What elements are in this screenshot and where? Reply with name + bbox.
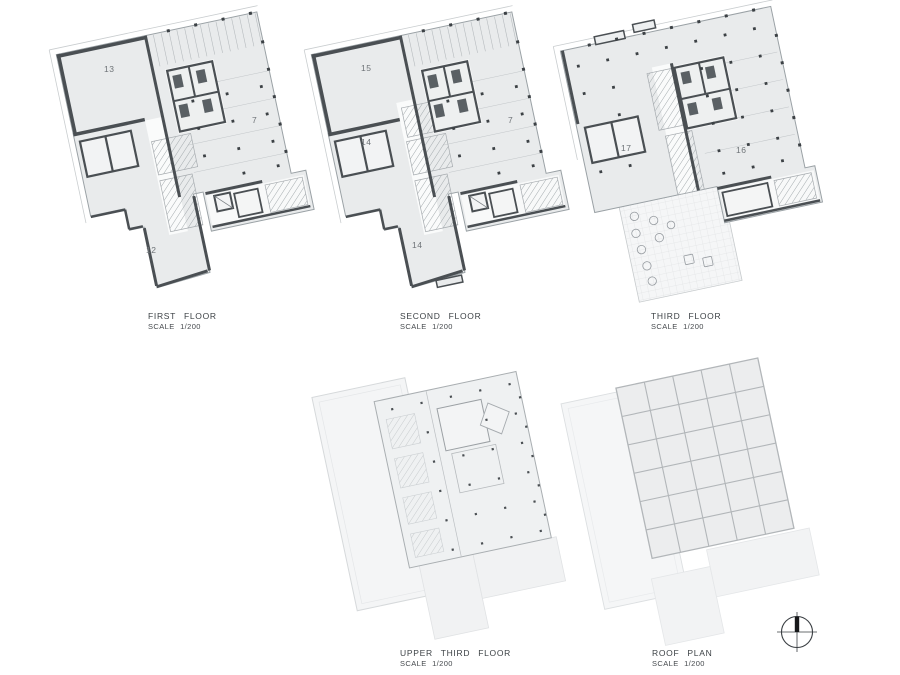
plan-scale: SCALE 1/200: [400, 659, 511, 670]
room-number-label: 14: [361, 137, 371, 147]
plan-title-third-floor: THIRD FLOOR SCALE 1/200: [651, 311, 721, 332]
plan-scale: SCALE 1/200: [651, 322, 721, 333]
plan-scale: SCALE 1/200: [148, 322, 217, 333]
room-number-label: 14: [412, 240, 422, 250]
drawing-sheet: FIRST FLOOR SCALE 1/200 SECOND FLOOR SCA…: [0, 0, 900, 675]
roof-plan-drawing: [565, 355, 835, 645]
upper-third-floor-drawing: [310, 355, 570, 645]
plan-title: ROOF PLAN: [652, 648, 712, 659]
first-floor-drawing: [55, 5, 315, 305]
first-floor-plan: [55, 5, 315, 305]
plan-title: THIRD FLOOR: [651, 311, 721, 322]
room-number-label: 12: [146, 245, 156, 255]
second-floor-drawing: [310, 5, 570, 305]
room-number-label: 7: [252, 115, 257, 125]
plan-title-upper-third-floor: UPPER THIRD FLOOR SCALE 1/200: [400, 648, 511, 669]
plan-title-first-floor: FIRST FLOOR SCALE 1/200: [148, 311, 217, 332]
room-number-label: 16: [736, 145, 746, 155]
plan-scale: SCALE 1/200: [652, 659, 712, 670]
upper-third-floor-plan: [310, 355, 570, 645]
room-number-label: 17: [621, 143, 631, 153]
room-number-label: 15: [361, 63, 371, 73]
north-arrow-icon: [773, 608, 821, 656]
plan-title: FIRST FLOOR: [148, 311, 217, 322]
third-floor-drawing: [565, 5, 830, 305]
plan-title: UPPER THIRD FLOOR: [400, 648, 511, 659]
third-floor-plan: [565, 5, 830, 305]
plan-title-roof-plan: ROOF PLAN SCALE 1/200: [652, 648, 712, 669]
plan-title: SECOND FLOOR: [400, 311, 481, 322]
second-floor-plan: [310, 5, 570, 305]
roof-plan: [565, 355, 835, 645]
plan-title-second-floor: SECOND FLOOR SCALE 1/200: [400, 311, 481, 332]
room-number-label: 13: [104, 64, 114, 74]
room-number-label: 7: [508, 115, 513, 125]
plan-scale: SCALE 1/200: [400, 322, 481, 333]
